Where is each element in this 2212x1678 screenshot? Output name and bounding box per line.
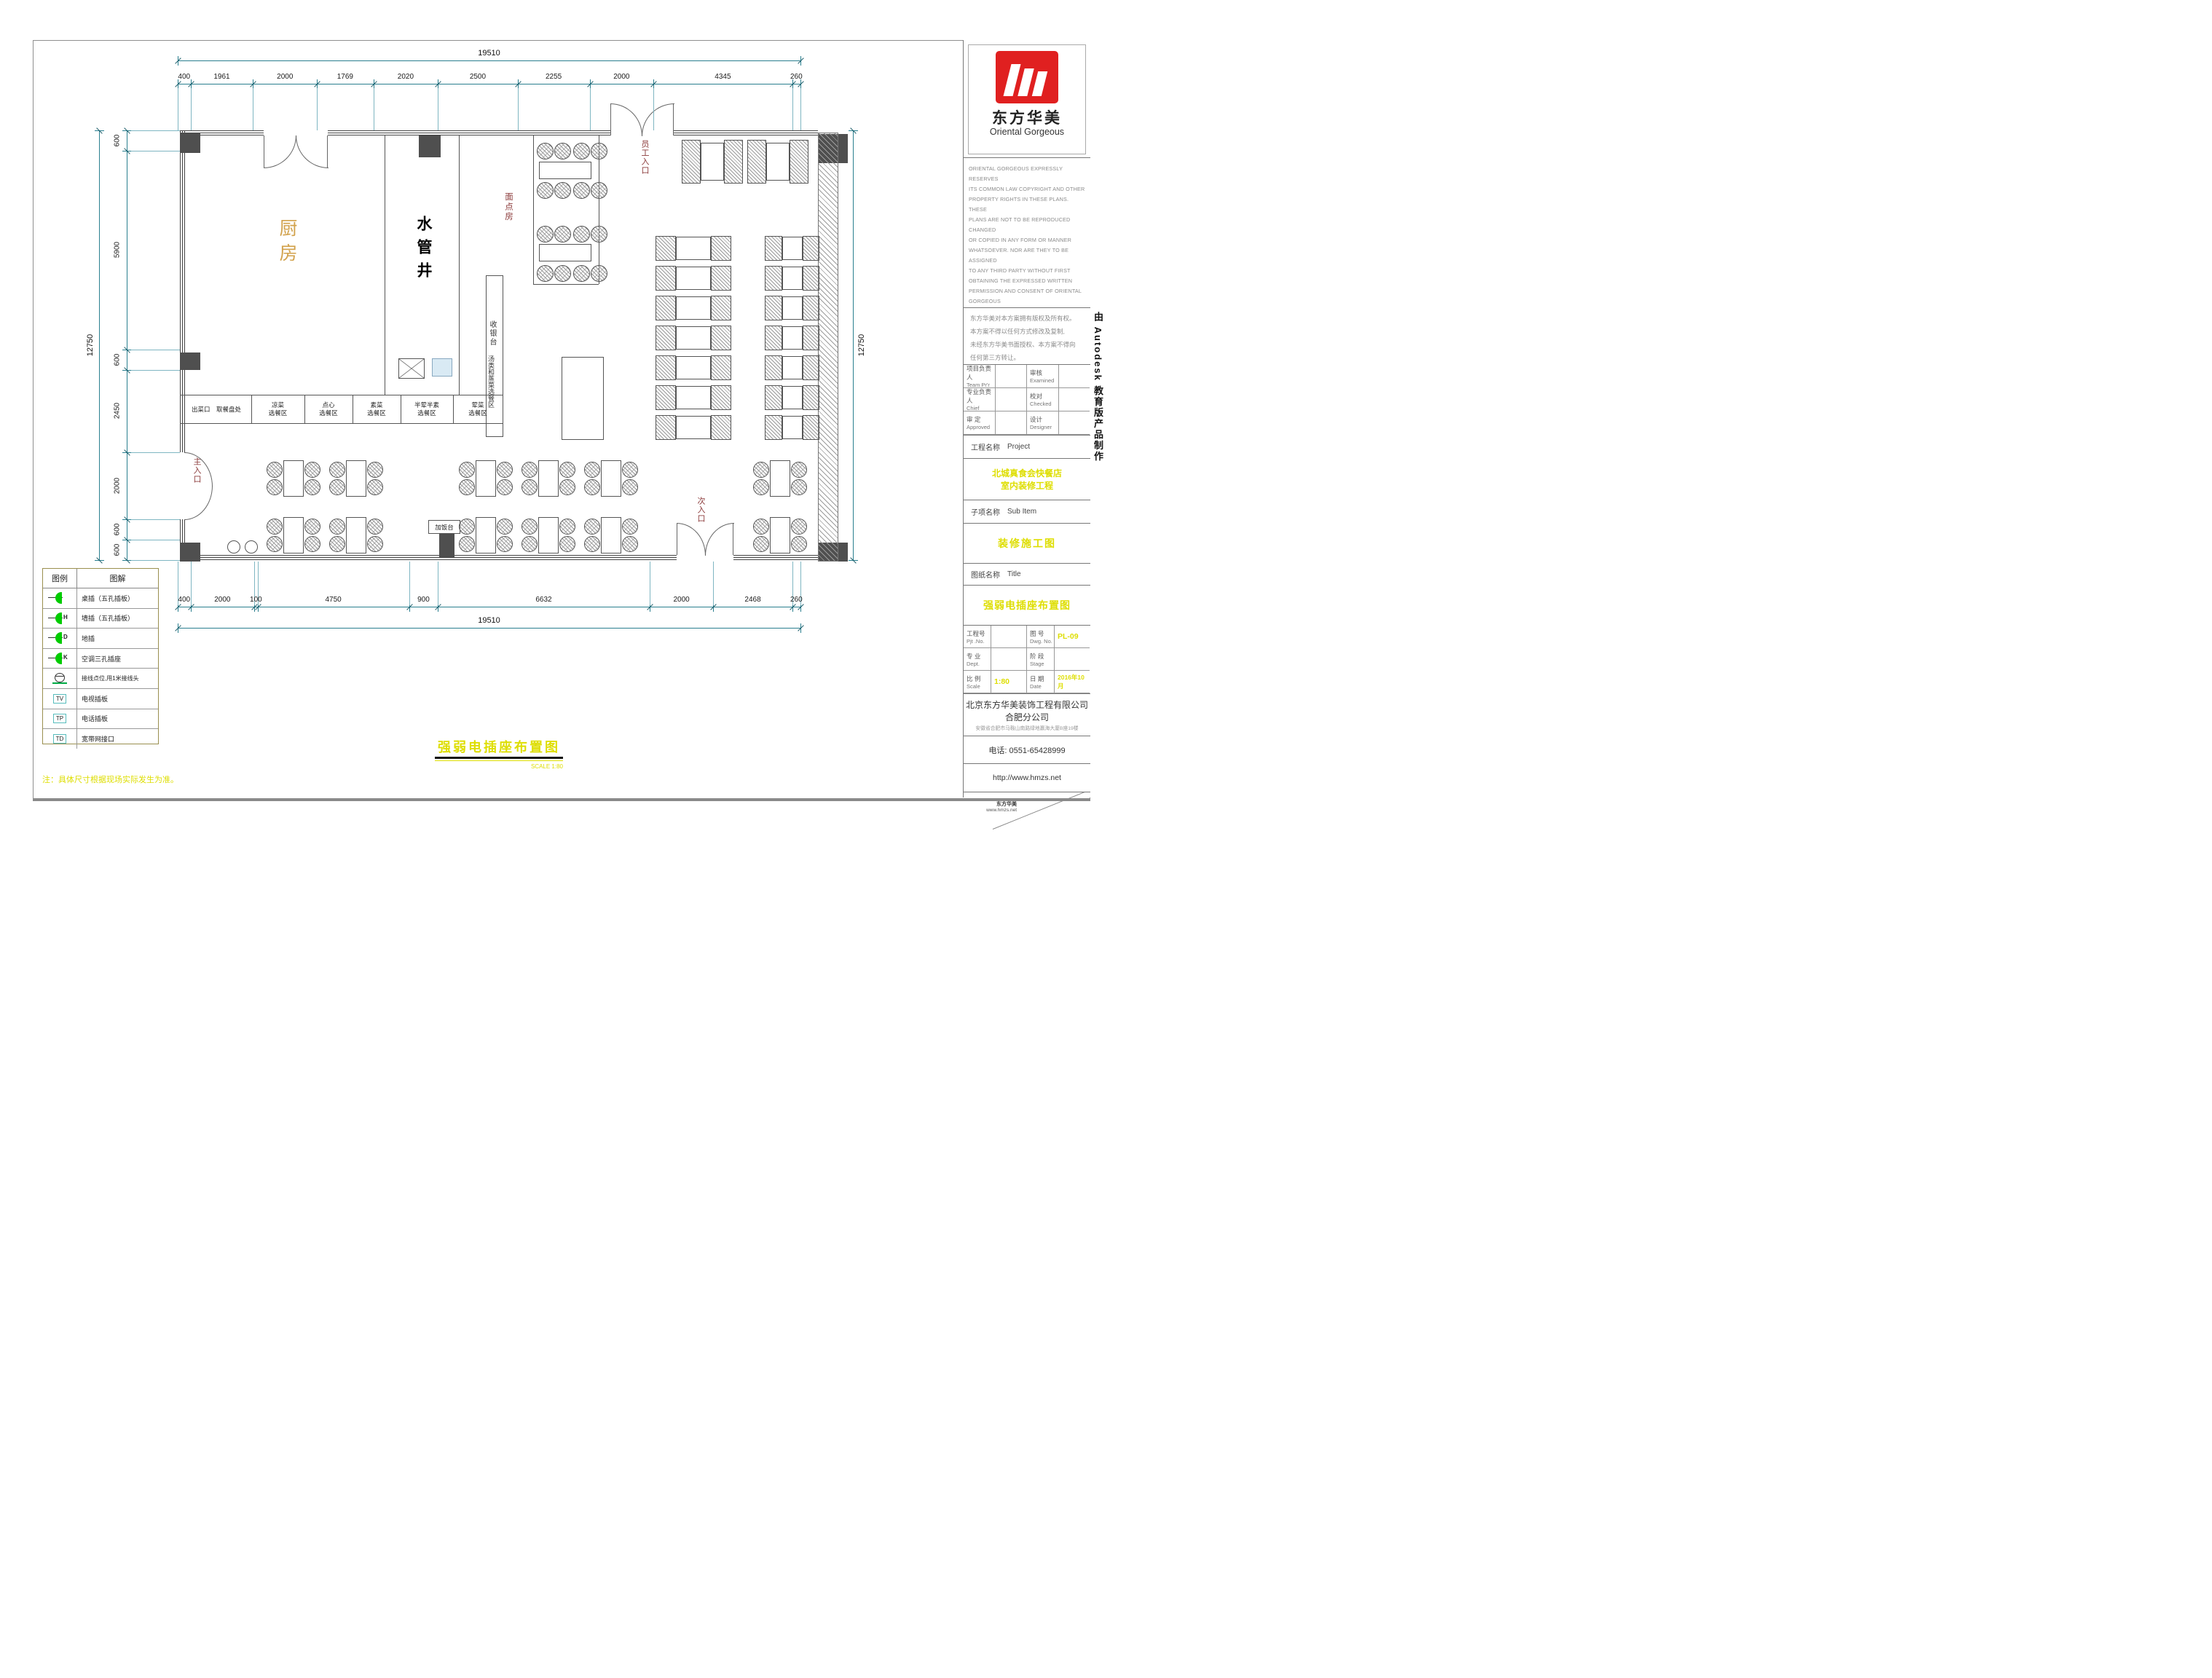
- wall: [674, 130, 818, 135]
- info-grid: 工程号Pjt .No.图 号Dwg. No.PL-09专 业Dept.阶 段St…: [964, 626, 1090, 694]
- chair-icon: [329, 519, 345, 535]
- table-icon: [476, 517, 496, 554]
- dim-extension: [131, 452, 180, 453]
- table-icon: [782, 386, 803, 409]
- table-icon: [770, 460, 790, 497]
- booth-seat-icon: [682, 140, 701, 184]
- table-icon: [701, 143, 724, 181]
- cashier-strip-label: 收银台: [487, 320, 497, 347]
- legend-icon-cell: [43, 669, 77, 688]
- dim-total-line: [99, 130, 100, 560]
- legend-row: H墙插（五孔插板）: [43, 609, 158, 629]
- table-icon: [539, 244, 591, 261]
- table-icon: [676, 386, 711, 409]
- booth-seat-icon: [803, 236, 819, 261]
- booth-seat-icon: [765, 415, 782, 440]
- serving-cell: 素菜选餐区: [353, 396, 401, 422]
- dim-label: 2000: [277, 73, 293, 81]
- stool-icon: [227, 540, 240, 554]
- partition-line: [180, 423, 503, 424]
- chair-icon: [329, 479, 345, 495]
- chair-icon: [497, 479, 513, 495]
- chair-icon: [791, 479, 807, 495]
- dim-label: 2000: [214, 596, 230, 604]
- sheet-label-cn: 图纸名称: [971, 569, 1000, 580]
- chair-icon: [304, 519, 320, 535]
- chair-icon: [622, 479, 638, 495]
- wall: [733, 555, 818, 560]
- chair-icon: [584, 536, 600, 552]
- chair-icon: [591, 226, 607, 243]
- column-pillar: [439, 534, 454, 557]
- booth-seat-icon: [656, 415, 676, 440]
- booth-seat-icon: [765, 326, 782, 350]
- legend-icon-cell: [43, 588, 77, 608]
- chair-icon: [573, 182, 590, 199]
- dim-label: 2468: [744, 596, 760, 604]
- legend-row: K空调三孔插座: [43, 649, 158, 669]
- url-text: http://www.hmzs.net: [993, 773, 1061, 782]
- chair-icon: [459, 479, 475, 495]
- dim-extension: [438, 562, 438, 605]
- copyright-cn-text: 东方华美对本方案拥有版权及所有权。本方案不得以任何方式修改及复制,未经东方华美书…: [964, 308, 1090, 364]
- booth-seat-icon: [656, 385, 676, 410]
- dim-total-label: 12750: [86, 334, 95, 357]
- table-icon: [782, 416, 803, 439]
- partition-line: [533, 284, 599, 285]
- footer-title-underline-black: [435, 757, 563, 759]
- chair-icon: [267, 536, 283, 552]
- info-label: 图 号Dwg. No.: [1027, 626, 1055, 648]
- info-value: [991, 626, 1027, 648]
- info-value: [991, 648, 1027, 671]
- subitem-label-cn: 子项名称: [971, 506, 1000, 517]
- legend-row: TV电视插板: [43, 689, 158, 709]
- dim-extension: [253, 88, 253, 130]
- dim-total-line: [853, 130, 854, 560]
- chair-icon: [459, 536, 475, 552]
- project-label-row: 工程名称 Project: [964, 436, 1090, 459]
- field-label: 设计Designer: [1027, 411, 1059, 435]
- company-address: 安徽省合肥市马鞍山南路绿地赢海大厦B座19楼: [975, 724, 1078, 731]
- sheet-title-box: 强弱电插座布置图: [964, 586, 1090, 626]
- partition-line: [486, 275, 503, 276]
- chair-icon: [554, 143, 571, 159]
- legend-icon-cell: D: [43, 629, 77, 648]
- chair-icon: [791, 519, 807, 535]
- subitem-label-en: Sub Item: [1007, 508, 1036, 516]
- dim-label: 2020: [398, 73, 414, 81]
- booth-seat-icon: [803, 266, 819, 291]
- chair-icon: [537, 226, 554, 243]
- legend-header-symbol: 图例: [43, 569, 77, 588]
- partition-line: [180, 395, 503, 395]
- chair-icon: [267, 462, 283, 478]
- stage-title-text: 装修施工图: [998, 536, 1056, 551]
- project-label-cn: 工程名称: [971, 441, 1000, 452]
- chair-icon: [591, 182, 607, 199]
- chair-icon: [329, 536, 345, 552]
- field-value: [996, 365, 1027, 388]
- dim-extension: [317, 88, 318, 130]
- legend-icon-cell: TV: [43, 689, 77, 709]
- table-icon: [782, 326, 803, 350]
- dim-extension: [713, 562, 714, 605]
- dim-label: 600: [114, 353, 122, 366]
- company-logo: [996, 51, 1058, 103]
- socket-box-icon: TP: [53, 714, 66, 723]
- chair-icon: [559, 462, 575, 478]
- dim-label: 900: [417, 596, 430, 604]
- chair-icon: [521, 536, 538, 552]
- legend-icon-cell: K: [43, 649, 77, 669]
- chair-icon: [753, 462, 769, 478]
- chair-icon: [591, 265, 607, 282]
- info-value: 1:80: [991, 671, 1027, 693]
- dim-extension: [590, 88, 591, 130]
- corner-diagonal: [993, 792, 1087, 830]
- copyright-en-section: ORIENTAL GORGEOUS EXPRESSLY RESERVESITS …: [964, 158, 1090, 308]
- dim-extension: [178, 88, 178, 130]
- chair-icon: [329, 462, 345, 478]
- chair-icon: [304, 462, 320, 478]
- table-icon: [283, 460, 304, 497]
- power-plug-icon: K: [48, 652, 71, 665]
- legend-table: 图例 图解 桌插（五孔插板）H墙插（五孔插板）D地插K空调三孔插座接线点位,甩1…: [42, 568, 159, 744]
- table-icon: [676, 326, 711, 350]
- chair-icon: [367, 462, 383, 478]
- drawing-sheet: 厨房 水管井 面点房 员工入口 主入口 次入口 收银台 汤类和蒸菜选餐区 收银台…: [0, 0, 1106, 839]
- info-label: 比 例Scale: [964, 671, 991, 693]
- column-pillar: [180, 133, 200, 153]
- dim-extension: [792, 88, 793, 130]
- legend-icon-cell: TD: [43, 729, 77, 749]
- company-name: 北京东方华美装饰工程有限公司: [966, 698, 1088, 711]
- table-icon: [770, 517, 790, 554]
- logo-cn-text: 东方华美: [969, 106, 1085, 128]
- chair-icon: [753, 479, 769, 495]
- dim-extension: [131, 519, 180, 520]
- project-name-box: 北城真食会快餐店 室内装修工程: [964, 459, 1090, 500]
- dim-extension: [131, 130, 180, 131]
- table-icon: [601, 517, 621, 554]
- dim-label: 600: [114, 544, 122, 556]
- secondary-entrance-label: 次入口: [695, 497, 706, 523]
- junction-point-icon: [52, 672, 67, 685]
- sheet-title-text: 强弱电插座布置图: [983, 598, 1071, 612]
- chair-icon: [554, 182, 571, 199]
- column-pillar: [419, 135, 441, 157]
- power-plug-icon: [48, 591, 71, 604]
- dim-label: 5900: [114, 242, 122, 258]
- url-section: http://www.hmzs.net: [964, 764, 1090, 792]
- legend-row-label: 空调三孔插座: [77, 654, 158, 663]
- dim-total-line: [178, 628, 800, 629]
- chair-icon: [304, 479, 320, 495]
- autodesk-edu-banner: 由 Autodesk 教育版产品制作: [1091, 312, 1105, 545]
- door-leaf: [327, 135, 328, 168]
- legend-row-label: 宽带网接口: [77, 734, 158, 744]
- info-label: 阶 段Stage: [1027, 648, 1055, 671]
- chair-icon: [267, 519, 283, 535]
- info-label: 专 业Dept.: [964, 648, 991, 671]
- dim-extension: [518, 88, 519, 130]
- booth-seat-icon: [656, 236, 676, 261]
- subitem-label-row: 子项名称 Sub Item: [964, 500, 1090, 524]
- table-icon: [782, 267, 803, 290]
- hatched-wall-strip: [818, 133, 838, 562]
- socket-box-icon: TV: [53, 694, 66, 704]
- equipment-box: [432, 358, 452, 377]
- sheet-footer-title: 强弱电插座布置图: [433, 737, 564, 756]
- booth-seat-icon: [765, 296, 782, 320]
- field-label: 审核Examined: [1027, 365, 1059, 388]
- legend-header-desc: 图解: [77, 569, 158, 588]
- door-leaf: [677, 523, 677, 555]
- field-label: 项目负责人Team Pr'r: [964, 365, 996, 388]
- dim-extension: [131, 560, 180, 561]
- chair-icon: [559, 519, 575, 535]
- booth-seat-icon: [803, 296, 819, 320]
- company-branch: 合肥分公司: [1005, 711, 1049, 723]
- copyright-cn-section: 东方华美对本方案拥有版权及所有权。本方案不得以任何方式修改及复制,未经东方华美书…: [964, 308, 1090, 365]
- chair-icon: [304, 536, 320, 552]
- partition-line: [503, 275, 503, 437]
- chair-icon: [591, 143, 607, 159]
- logo-en-text: Oriental Gorgeous: [969, 127, 1085, 137]
- chair-icon: [554, 265, 571, 282]
- legend-rows: 桌插（五孔插板）H墙插（五孔插板）D地插K空调三孔插座接线点位,甩1米接线头TV…: [43, 588, 158, 749]
- dim-total-label: 19510: [478, 49, 500, 58]
- dim-extension: [650, 562, 650, 605]
- booth-seat-icon: [656, 266, 676, 291]
- footer-scale-text: SCALE 1:80: [435, 763, 563, 770]
- booth-seat-icon: [765, 385, 782, 410]
- chair-icon: [573, 265, 590, 282]
- chair-icon: [497, 462, 513, 478]
- power-plug-icon: D: [48, 631, 71, 645]
- chair-icon: [584, 519, 600, 535]
- legend-row-label: 电话插板: [77, 714, 158, 723]
- booth-seat-icon: [711, 355, 731, 380]
- chair-icon: [521, 462, 538, 478]
- booth-seat-icon: [711, 296, 731, 320]
- footer-note: 注：具体尺寸根据现场实际发生为准。: [42, 773, 178, 785]
- dim-extension: [653, 88, 654, 130]
- dim-label: 1961: [213, 73, 229, 81]
- booth-seat-icon: [747, 140, 766, 184]
- table-icon: [538, 460, 559, 497]
- project-name-line2: 室内装修工程: [1001, 479, 1053, 492]
- serving-cell: 点心选餐区: [304, 396, 353, 422]
- legend-row: 桌插（五孔插板）: [43, 588, 158, 609]
- signature-fields-grid: 项目负责人Team Pr'r审核Examined专业负责人Chief校对Chec…: [964, 365, 1090, 436]
- dim-label: 2500: [470, 73, 486, 81]
- dim-extension: [374, 88, 374, 130]
- dim-label: 1769: [337, 73, 353, 81]
- legend-row-label: 地插: [77, 634, 158, 643]
- partition-line: [459, 135, 460, 395]
- serving-cell: 出菜口 取餐盘处: [181, 397, 251, 422]
- chair-icon: [537, 143, 554, 159]
- legend-icon-cell: TP: [43, 709, 77, 729]
- phone-text: 电话: 0551-65428999: [988, 744, 1065, 756]
- booth-seat-icon: [656, 326, 676, 350]
- crossed-equipment-box: [398, 358, 425, 379]
- door-leaf: [610, 103, 611, 135]
- info-value: PL-09: [1055, 626, 1090, 648]
- dim-total-label: 12750: [857, 334, 866, 357]
- field-value: [996, 388, 1027, 411]
- table-icon: [476, 460, 496, 497]
- booth-seat-icon: [803, 326, 819, 350]
- info-value: 2016年10月: [1055, 671, 1090, 693]
- dim-extension: [800, 88, 801, 130]
- info-label: 日 期Date: [1027, 671, 1055, 693]
- field-value: [1059, 411, 1090, 435]
- chair-icon: [622, 519, 638, 535]
- kitchen-room-label: 厨房: [274, 218, 300, 268]
- company-section: 北京东方华美装饰工程有限公司 合肥分公司 安徽省合肥市马鞍山南路绿地赢海大厦B座…: [964, 694, 1090, 736]
- stool-icon: [245, 540, 258, 554]
- sheet-label-en: Title: [1007, 570, 1021, 578]
- table-icon: [782, 237, 803, 260]
- chair-icon: [537, 265, 554, 282]
- field-value: [1059, 388, 1090, 411]
- table-icon: [676, 296, 711, 320]
- field-label: 校对Checked: [1027, 388, 1059, 411]
- partition-line: [486, 436, 503, 437]
- table-icon: [346, 517, 366, 554]
- chair-icon: [459, 462, 475, 478]
- table-icon: [676, 267, 711, 290]
- chair-icon: [367, 479, 383, 495]
- table-icon: [782, 356, 803, 379]
- chair-icon: [753, 519, 769, 535]
- chair-icon: [584, 479, 600, 495]
- legend-row-label: 接线点位,甩1米接线头: [77, 674, 158, 682]
- table-icon: [782, 296, 803, 320]
- partition-line: [533, 135, 534, 284]
- table-icon: [676, 237, 711, 260]
- project-name-line1: 北城真食会快餐店: [992, 467, 1062, 479]
- staff-entrance-label: 员工入口: [639, 140, 650, 175]
- booth-seat-icon: [656, 296, 676, 320]
- dim-extension: [131, 151, 180, 151]
- serving-cell: 凉菜选餐区: [251, 396, 304, 422]
- booth-seat-icon: [711, 266, 731, 291]
- dim-extension: [131, 540, 180, 540]
- footer-title-underline-yellow: [435, 760, 563, 761]
- dim-extension: [191, 88, 192, 130]
- booth-seat-icon: [724, 140, 743, 184]
- booth-seat-icon: [790, 140, 808, 184]
- chair-icon: [554, 226, 571, 243]
- table-icon: [346, 460, 366, 497]
- door-leaf: [673, 103, 674, 135]
- legend-row-label: 电视插板: [77, 694, 158, 704]
- table-icon: [766, 143, 790, 181]
- chair-icon: [584, 462, 600, 478]
- booth-seat-icon: [803, 355, 819, 380]
- booth-seat-icon: [765, 236, 782, 261]
- chair-icon: [521, 519, 538, 535]
- legend-row: TP电话插板: [43, 709, 158, 730]
- chair-icon: [791, 462, 807, 478]
- partition-line: [385, 135, 385, 395]
- dim-line: [178, 607, 800, 607]
- table-icon: [601, 460, 621, 497]
- field-label: 审 定Approved: [964, 411, 996, 435]
- chair-icon: [791, 536, 807, 552]
- dim-label: 260: [790, 596, 803, 604]
- dim-label: 4750: [326, 596, 342, 604]
- table-icon: [283, 517, 304, 554]
- dim-extension: [191, 562, 192, 605]
- stage-title-box: 装修施工图: [964, 524, 1090, 564]
- chair-icon: [573, 226, 590, 243]
- serving-cell: 半荤半素选餐区: [401, 396, 453, 422]
- dim-extension: [438, 88, 438, 130]
- pastry-room-label: 面点房: [503, 192, 514, 222]
- field-value: [996, 411, 1027, 435]
- chair-icon: [521, 479, 538, 495]
- dim-label: 2255: [546, 73, 562, 81]
- dim-extension: [131, 370, 180, 371]
- dim-extension: [409, 562, 410, 605]
- table-icon: [538, 517, 559, 554]
- field-label: 专业负责人Chief: [964, 388, 996, 411]
- sheet-label-row: 图纸名称 Title: [964, 564, 1090, 586]
- dim-label: 600: [114, 524, 122, 536]
- dim-label: 400: [178, 73, 190, 81]
- dim-label: 400: [178, 596, 190, 604]
- booth-seat-icon: [656, 355, 676, 380]
- dim-label: 4345: [715, 73, 731, 81]
- dim-total-label: 19510: [478, 616, 500, 625]
- dim-line: [178, 84, 800, 84]
- booth-seat-icon: [711, 326, 731, 350]
- copyright-en-text: ORIENTAL GORGEOUS EXPRESSLY RESERVESITS …: [964, 158, 1090, 307]
- chair-icon: [753, 536, 769, 552]
- dim-label: 2450: [114, 403, 122, 419]
- title-block: 东方华美 Oriental Gorgeous ORIENTAL GORGEOUS…: [963, 40, 1090, 797]
- rice-station-box: 加饭台: [428, 520, 460, 534]
- socket-box-icon: TD: [53, 734, 67, 744]
- booth-seat-icon: [803, 415, 819, 440]
- legend-row-label: 桌插（五孔插板）: [77, 594, 158, 603]
- logo-section: 东方华美 Oriental Gorgeous: [964, 40, 1090, 158]
- column-pillar: [180, 543, 200, 562]
- corner-section: [964, 792, 1090, 832]
- legend-row-label: 墙插（五孔插板）: [77, 613, 158, 623]
- booth-seat-icon: [765, 266, 782, 291]
- chair-icon: [537, 182, 554, 199]
- dim-label: 2000: [114, 478, 122, 494]
- column-pillar: [180, 352, 200, 370]
- chair-icon: [367, 519, 383, 535]
- booth-seat-icon: [711, 385, 731, 410]
- dim-label: 260: [790, 73, 803, 81]
- chair-icon: [267, 479, 283, 495]
- legend-row: D地插: [43, 629, 158, 649]
- dim-line: [127, 130, 127, 560]
- power-plug-icon: H: [48, 612, 71, 625]
- chair-icon: [622, 462, 638, 478]
- dim-label: 2000: [674, 596, 690, 604]
- chair-icon: [622, 536, 638, 552]
- table-icon: [676, 416, 711, 439]
